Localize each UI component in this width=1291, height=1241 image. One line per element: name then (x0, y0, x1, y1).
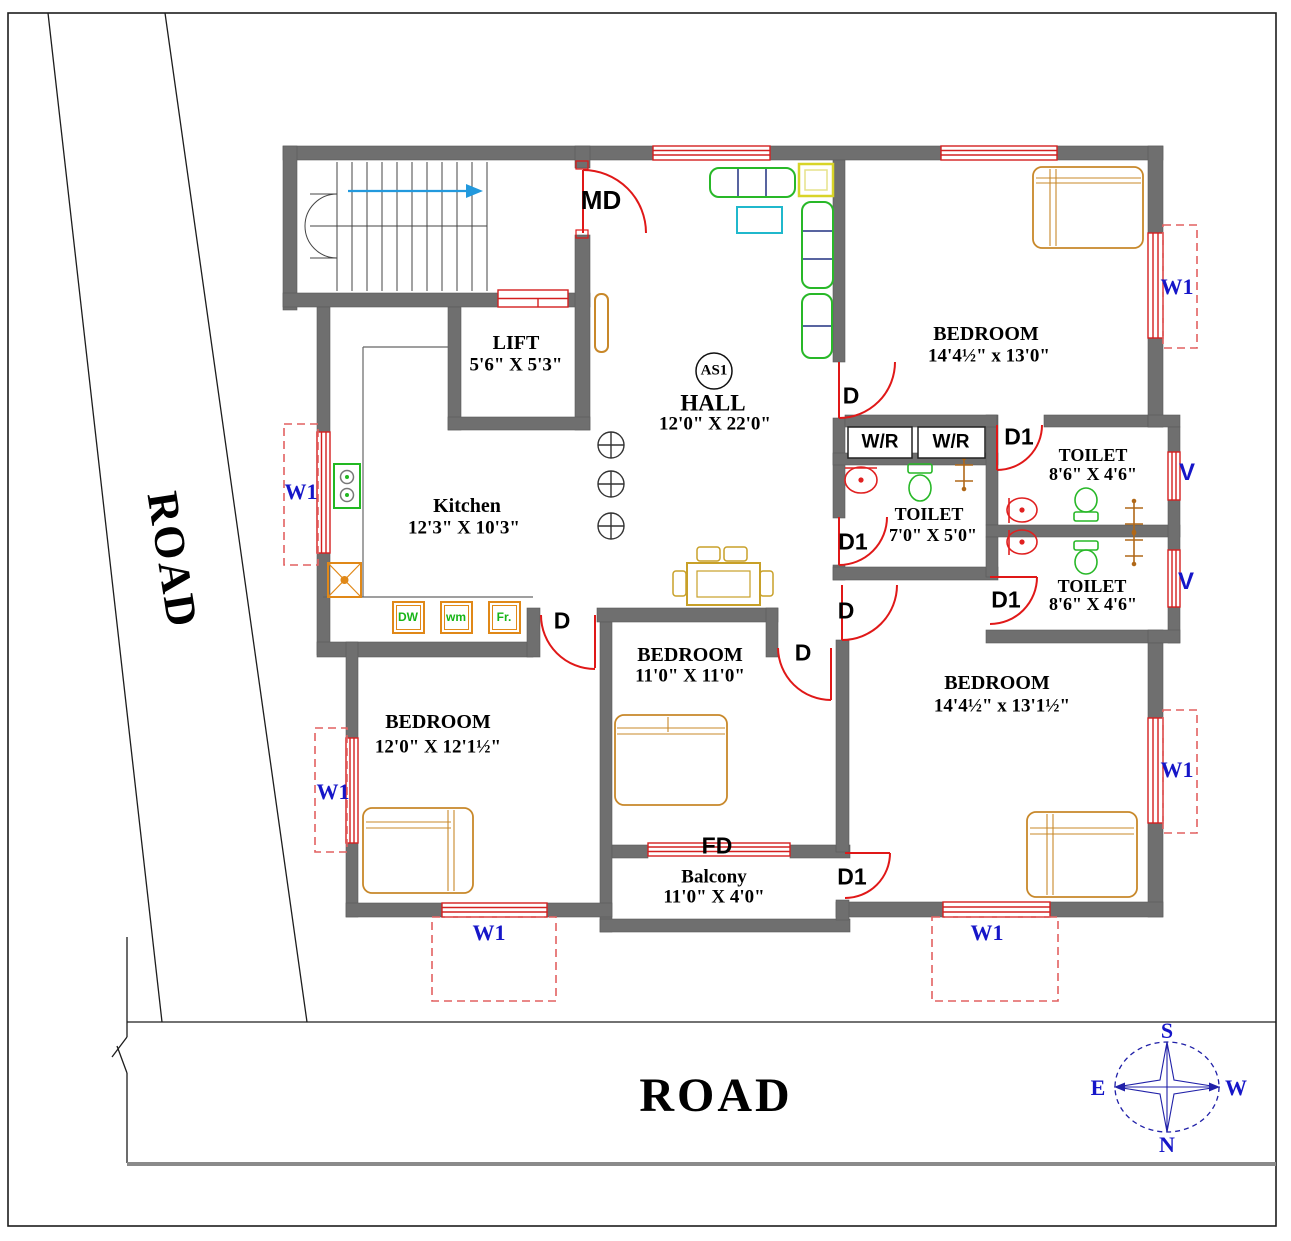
window-w1-label: W1 (971, 922, 1004, 944)
column-icon (598, 471, 624, 497)
sofa-right-2 (802, 294, 832, 358)
compass-n-label: N (1159, 1134, 1175, 1156)
toilet-bottom-name: TOILET (1058, 577, 1127, 595)
compass-s-label: S (1161, 1020, 1173, 1042)
compass-e-label: E (1091, 1077, 1106, 1099)
door-d1-label: D1 (991, 589, 1020, 612)
staircase (305, 162, 487, 291)
toilet-mid-name: TOILET (895, 505, 964, 523)
door-d-label: D (843, 385, 860, 408)
lift-dim: 5'6" X 5'3" (470, 356, 563, 375)
washbasin-icon (845, 467, 877, 493)
appliance-wm-label: wm (446, 611, 466, 623)
window-w1-label: W1 (473, 922, 506, 944)
stove (334, 464, 360, 508)
kitchen-counter (323, 347, 533, 597)
kitchen-dim: 12'3" X 10'3" (408, 519, 520, 538)
wc-icon (1074, 541, 1098, 574)
wc-icon (1074, 488, 1098, 521)
lift-name: LIFT (493, 333, 540, 353)
window-bedroom-br-bottom (943, 902, 1050, 917)
window-hall-top (653, 146, 770, 160)
compass-w-label: W (1225, 1077, 1247, 1099)
door-d-label: D (554, 610, 571, 633)
bedroom-mid-dim: 11'0" X 11'0" (635, 667, 745, 686)
hall-cabinet (595, 294, 608, 352)
side-table (799, 164, 833, 196)
door-d1-label: D1 (1004, 426, 1033, 449)
walls (283, 146, 1180, 932)
floor-plan-canvas: MD LIFT 5'6" X 5'3" AS1 HALL 12'0" X 22'… (0, 0, 1291, 1241)
lift-grill (498, 290, 568, 307)
hall-name: HALL (680, 392, 745, 415)
bedroom-bl-name: BEDROOM (385, 712, 491, 732)
bedroom-mid-name: BEDROOM (637, 645, 743, 665)
hall-furniture (595, 164, 833, 389)
balcony-name: Balcony (681, 868, 746, 887)
hall-tag: AS1 (701, 364, 728, 379)
bed-bedroom-mid (615, 715, 727, 805)
bedroom-br-name: BEDROOM (944, 673, 1050, 693)
hall-dim: 12'0" X 22'0" (659, 415, 771, 434)
toilet-top-dim: 8'6" X 4'6" (1049, 465, 1137, 483)
column-icon (598, 513, 624, 539)
wr-label: W/R (862, 433, 899, 452)
window-bedroom-tr-top (941, 146, 1057, 160)
ventilator-label: V (1179, 461, 1195, 485)
bed-bedroom-tr (1033, 167, 1143, 248)
sofa-top (710, 168, 795, 197)
stair-direction-arrow-icon (466, 184, 483, 198)
window-bedroom-bl-bottom (442, 903, 547, 917)
door-d1-label: D1 (838, 531, 867, 554)
door-d1-label: D1 (837, 866, 866, 889)
kitchen-sink (328, 563, 361, 597)
wc-icon (908, 464, 932, 501)
toilet-top-name: TOILET (1059, 446, 1128, 464)
road-bottom-label: ROAD (639, 1072, 792, 1120)
wr-label: W/R (933, 433, 970, 452)
door-d-label: D (838, 600, 855, 623)
toilet-bottom-dim: 8'6" X 4'6" (1049, 595, 1137, 613)
door-d-label: D (795, 642, 812, 665)
main-door-label: MD (581, 187, 621, 213)
toilet-mid-dim: 7'0" X 5'0" (889, 526, 977, 544)
columns (598, 432, 624, 539)
window-w1-label: W1 (1161, 759, 1194, 781)
sofa-right-1 (802, 202, 833, 288)
appliance-dw-label: DW (398, 611, 418, 623)
column-icon (598, 432, 624, 458)
kitchen-name: Kitchen (433, 496, 501, 516)
compass-icon (1114, 1042, 1220, 1132)
window-w1-label: W1 (1161, 276, 1194, 298)
folding-door-label: FD (702, 835, 733, 858)
bedroom-bl-dim: 12'0" X 12'1½" (375, 738, 501, 757)
window-kitchen-left (317, 432, 330, 553)
bed-bedroom-br (1027, 812, 1137, 897)
window-w1-label: W1 (317, 781, 350, 803)
kitchen-fixtures (323, 347, 533, 633)
bedroom-br-dim: 14'4½" x 13'1½" (934, 697, 1070, 716)
window-w1-label: W1 (285, 481, 318, 503)
ventilator-label: V (1178, 570, 1194, 594)
bed-bedroom-bl (363, 808, 473, 893)
washbasin-icon (1007, 498, 1037, 523)
coffee-table (737, 207, 782, 233)
appliance-fr-label: Fr. (497, 611, 512, 623)
bedroom-tr-name: BEDROOM (933, 324, 1039, 344)
dining-set (673, 547, 773, 605)
bedroom-tr-dim: 14'4½" x 13'0" (928, 347, 1050, 366)
balcony-dim: 11'0" X 4'0" (663, 888, 764, 907)
